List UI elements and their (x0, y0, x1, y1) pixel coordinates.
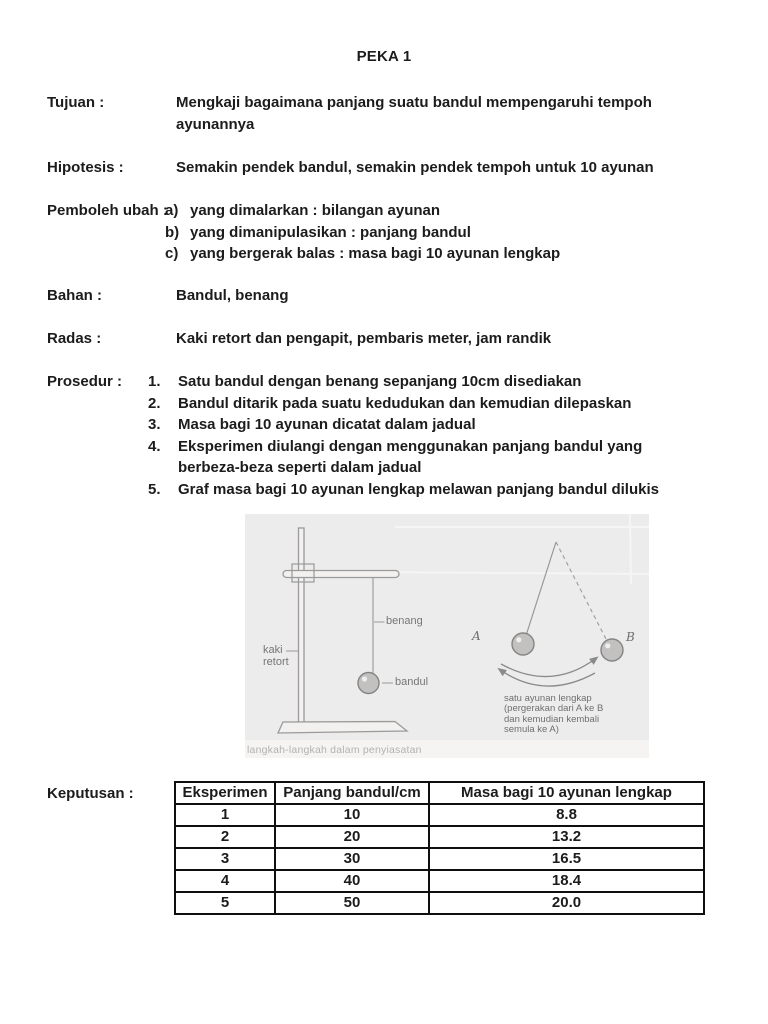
list-item-text: Eksperimen diulangi dengan menggunakan p… (178, 436, 642, 479)
pendulum-bob (358, 673, 379, 694)
tujuan-text: Mengkaji bagaimana panjang suatu bandul … (176, 92, 652, 135)
section-label-hipotesis: Hipotesis : (47, 157, 124, 179)
list-item-text: yang dimanipulasikan : panjang bandul (190, 222, 471, 244)
table-cell: 1 (175, 804, 275, 826)
swing-arrow-a-to-b (501, 658, 597, 677)
list-item: 1. Satu bandul dengan benang sepanjang 1… (148, 371, 659, 393)
pemboleh-ubah-list: a) yang dimalarkan : bilangan ayunan b) … (165, 200, 560, 265)
list-item-marker: c) (165, 243, 190, 265)
page-title: PEKA 1 (0, 46, 768, 68)
list-item-marker: 5. (148, 479, 178, 501)
kaki-retort-label-line-1: kaki (263, 645, 289, 657)
table-header-cell: Eksperimen (175, 782, 275, 804)
table-cell: 18.4 (429, 870, 704, 892)
ball-b-highlight (605, 643, 610, 648)
point-b-label: B (626, 630, 635, 644)
list-item-text: yang dimalarkan : bilangan ayunan (190, 200, 440, 222)
list-item-text-line: Eksperimen diulangi dengan menggunakan p… (178, 436, 642, 458)
table-cell: 13.2 (429, 826, 704, 848)
list-item-marker: 2. (148, 393, 178, 415)
benang-label: benang (386, 616, 423, 628)
table-header-cell: Masa bagi 10 ayunan lengkap (429, 782, 704, 804)
table-cell: 5 (175, 892, 275, 914)
section-label-keputusan: Keputusan : (47, 783, 134, 805)
list-item-text: Graf masa bagi 10 ayunan lengkap melawan… (178, 479, 659, 501)
scan-artifact-lines (365, 514, 649, 584)
list-item-text: yang bergerak balas : masa bagi 10 ayuna… (190, 243, 560, 265)
list-item: a) yang dimalarkan : bilangan ayunan (165, 200, 560, 222)
retort-arm (283, 571, 399, 578)
table-header-row: Eksperimen Panjang bandul/cm Masa bagi 1… (175, 782, 704, 804)
list-item-marker: b) (165, 222, 190, 244)
section-label-bahan: Bahan : (47, 285, 102, 307)
list-item: 5. Graf masa bagi 10 ayunan lengkap mela… (148, 479, 659, 501)
kaki-retort-label: kaki retort (263, 645, 289, 668)
table-cell: 2 (175, 826, 275, 848)
table-row: 1 10 8.8 (175, 804, 704, 826)
section-label-radas: Radas : (47, 328, 101, 350)
swing-line-solid (527, 542, 557, 634)
table-cell: 50 (275, 892, 429, 914)
list-item-text: Bandul ditarik pada suatu kedudukan dan … (178, 393, 631, 415)
bandul-label: bandul (395, 677, 428, 689)
bob-highlight (362, 676, 367, 681)
list-item: b) yang dimanipulasikan : panjang bandul (165, 222, 560, 244)
bahan-text: Bandul, benang (176, 285, 289, 307)
ball-b (601, 639, 623, 661)
table-cell: 40 (275, 870, 429, 892)
table-cell: 8.8 (429, 804, 704, 826)
swing-caption-line-4: semula ke A) (504, 725, 603, 735)
figure-bottom-caption: langkah-langkah dalam penyiasatan (247, 744, 422, 756)
results-table: Eksperimen Panjang bandul/cm Masa bagi 1… (174, 781, 705, 915)
list-item-marker: 4. (148, 436, 178, 479)
ball-a (512, 633, 534, 655)
table-cell: 16.5 (429, 848, 704, 870)
list-item-text: Satu bandul dengan benang sepanjang 10cm… (178, 371, 581, 393)
list-item: c) yang bergerak balas : masa bagi 10 ay… (165, 243, 560, 265)
list-item-text: Masa bagi 10 ayunan dicatat dalam jadual (178, 414, 476, 436)
table-header-cell: Panjang bandul/cm (275, 782, 429, 804)
tujuan-line-2: ayunannya (176, 114, 652, 136)
list-item-text-line: berbeza-beza seperti dalam jadual (178, 457, 642, 479)
table-row: 5 50 20.0 (175, 892, 704, 914)
hipotesis-text: Semakin pendek bandul, semakin pendek te… (176, 157, 654, 179)
section-label-prosedur: Prosedur : (47, 371, 122, 393)
retort-base (278, 722, 407, 734)
table-cell: 20 (275, 826, 429, 848)
pendulum-swing-drawing (499, 542, 623, 686)
point-a-label: A (472, 629, 481, 643)
experiment-setup-figure: benang bandul kaki retort A B satu ayuna… (245, 514, 649, 758)
kaki-retort-label-line-2: retort (263, 657, 289, 669)
list-item-marker: 3. (148, 414, 178, 436)
table-cell: 3 (175, 848, 275, 870)
radas-text: Kaki retort dan pengapit, pembaris meter… (176, 328, 551, 350)
retort-rod (299, 528, 305, 724)
list-item: 4. Eksperimen diulangi dengan menggunaka… (148, 436, 659, 479)
swing-caption: satu ayunan lengkap (pergerakan dari A k… (504, 694, 603, 735)
list-item: 3. Masa bagi 10 ayunan dicatat dalam jad… (148, 414, 659, 436)
table-cell: 20.0 (429, 892, 704, 914)
swing-arrow-b-to-a (499, 669, 595, 686)
tujuan-line-1: Mengkaji bagaimana panjang suatu bandul … (176, 92, 652, 114)
table-row: 3 30 16.5 (175, 848, 704, 870)
list-item-marker: 1. (148, 371, 178, 393)
section-label-tujuan: Tujuan : (47, 92, 104, 114)
table-cell: 10 (275, 804, 429, 826)
list-item-marker: a) (165, 200, 190, 222)
swing-line-dashed (556, 542, 607, 640)
table-row: 4 40 18.4 (175, 870, 704, 892)
ball-a-highlight (516, 637, 521, 642)
table-cell: 4 (175, 870, 275, 892)
table-cell: 30 (275, 848, 429, 870)
retort-stand-drawing (278, 528, 407, 733)
prosedur-list: 1. Satu bandul dengan benang sepanjang 1… (148, 371, 659, 500)
document-page: { "page": { "title": "PEKA 1", "backgrou… (0, 0, 768, 1024)
table-row: 2 20 13.2 (175, 826, 704, 848)
list-item: 2. Bandul ditarik pada suatu kedudukan d… (148, 393, 659, 415)
section-label-pemboleh-ubah: Pemboleh ubah : (47, 200, 168, 222)
